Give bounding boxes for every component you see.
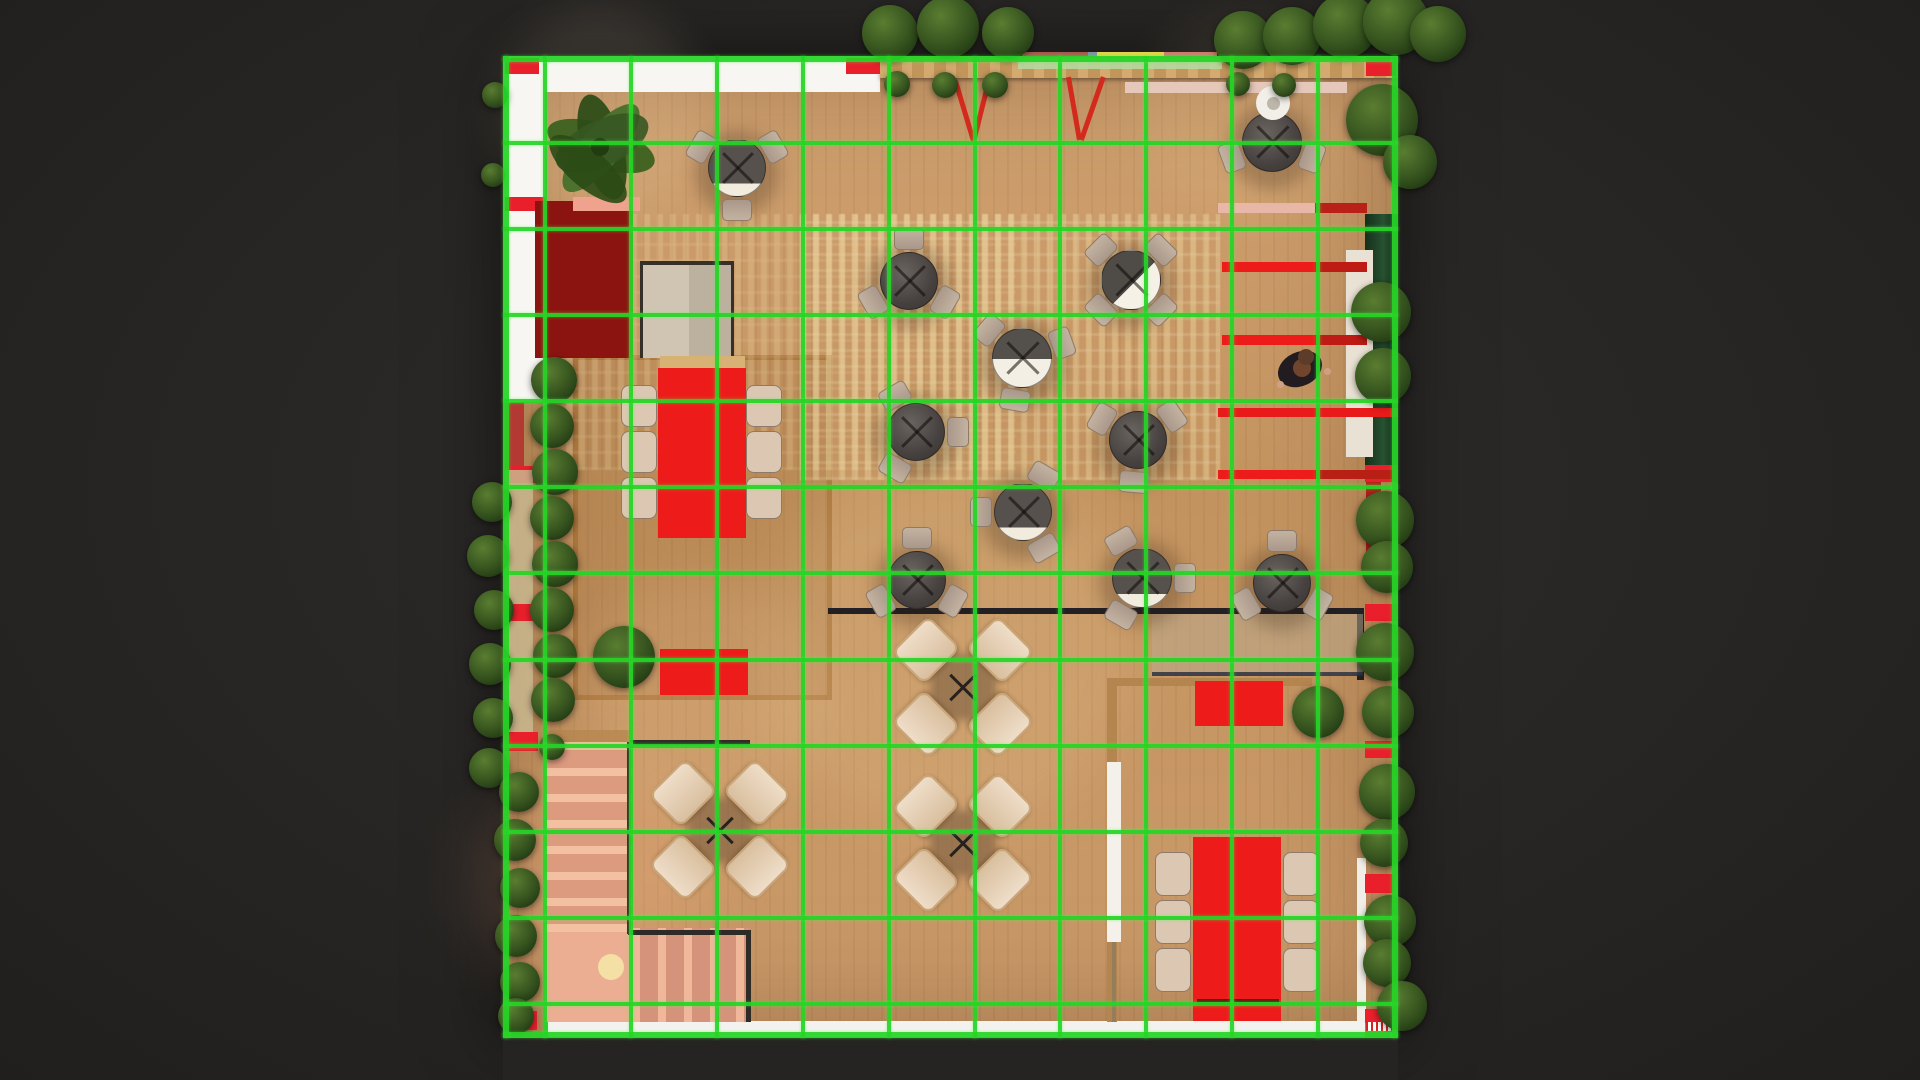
grid-v-line bbox=[973, 56, 977, 1038]
stair-rail bbox=[746, 930, 751, 1022]
cafe-chair bbox=[902, 527, 932, 549]
red-bench-bar bbox=[1222, 262, 1315, 272]
cafe-chair bbox=[947, 417, 969, 447]
bush bbox=[1360, 819, 1408, 867]
grid-v-line bbox=[1058, 56, 1062, 1038]
dining-chair bbox=[1155, 948, 1191, 992]
bush bbox=[982, 7, 1034, 59]
staircase-upper-flight bbox=[545, 742, 632, 932]
dining-chair bbox=[1155, 852, 1191, 896]
long-red-table bbox=[658, 368, 746, 538]
grid-v-line bbox=[543, 56, 547, 1038]
white-vase-mouth bbox=[1267, 97, 1280, 110]
red-bench-bar bbox=[1315, 470, 1398, 479]
dining-chair bbox=[1283, 948, 1319, 992]
sideboard-cabinet bbox=[640, 261, 734, 358]
grid-h-line bbox=[503, 313, 1398, 317]
white-screen-panel bbox=[1107, 762, 1121, 942]
bush bbox=[1362, 686, 1414, 738]
staircase-lower-flight bbox=[632, 928, 750, 1022]
grid-v-line bbox=[887, 56, 891, 1038]
bush bbox=[532, 541, 578, 587]
dining-chair bbox=[621, 385, 657, 427]
bush bbox=[1355, 348, 1411, 404]
bush bbox=[982, 72, 1008, 98]
bar-table-edge bbox=[1152, 672, 1363, 676]
bush bbox=[1363, 939, 1411, 987]
bush bbox=[530, 496, 574, 540]
grid-h-line bbox=[503, 916, 1398, 920]
grid-h-line bbox=[503, 141, 1398, 145]
grid-h-line bbox=[503, 744, 1398, 748]
dining-chair bbox=[1283, 852, 1319, 896]
long-red-table bbox=[1193, 837, 1281, 1021]
dining-chair bbox=[746, 477, 782, 519]
bush bbox=[530, 588, 574, 632]
bush bbox=[1351, 282, 1411, 342]
bush bbox=[531, 678, 575, 722]
dark-red-wall bbox=[535, 201, 633, 358]
bistro-table bbox=[1109, 411, 1167, 469]
grid-border-left bbox=[503, 56, 509, 1038]
red-ottoman bbox=[660, 649, 748, 695]
red-accent bbox=[505, 732, 538, 751]
grid-v-line bbox=[1230, 56, 1234, 1038]
bistro-table bbox=[994, 483, 1052, 541]
grid-h-line bbox=[503, 485, 1398, 489]
person-head bbox=[1298, 349, 1314, 365]
bush bbox=[530, 404, 574, 448]
bush bbox=[1272, 73, 1296, 97]
bush bbox=[1410, 6, 1466, 62]
screen-panel-rail bbox=[1112, 942, 1116, 1022]
bush bbox=[862, 5, 918, 61]
dining-chair bbox=[746, 431, 782, 473]
red-bench-bar bbox=[1315, 203, 1367, 213]
cafe-chair bbox=[1267, 530, 1297, 552]
red-bench-bar bbox=[1315, 335, 1367, 345]
stair-rail bbox=[628, 930, 750, 935]
red-bench-bar bbox=[1218, 408, 1398, 417]
bush bbox=[1377, 981, 1427, 1031]
red-ottoman bbox=[1195, 681, 1283, 726]
grid-h-line bbox=[503, 227, 1398, 231]
grid-v-line bbox=[1144, 56, 1148, 1038]
bush bbox=[932, 72, 958, 98]
bistro-table bbox=[888, 551, 946, 609]
bush bbox=[1356, 623, 1414, 681]
bar-table-surface bbox=[1152, 614, 1363, 674]
cafe-chair bbox=[894, 228, 924, 250]
dining-chair bbox=[746, 385, 782, 427]
dining-chair bbox=[1283, 900, 1319, 944]
floor-light-dot bbox=[598, 954, 624, 980]
grid-v-line bbox=[801, 56, 805, 1038]
bush bbox=[1361, 541, 1413, 593]
grid-h-line bbox=[503, 830, 1398, 834]
grid-h-line bbox=[503, 1002, 1398, 1006]
dining-chair bbox=[621, 477, 657, 519]
cafe-chair bbox=[722, 199, 752, 221]
grid-v-line bbox=[629, 56, 633, 1038]
bistro-table bbox=[887, 403, 945, 461]
bush bbox=[481, 163, 505, 187]
grid-border-top bbox=[503, 56, 1398, 62]
cafe-chair bbox=[1174, 563, 1196, 593]
person-hand bbox=[1277, 381, 1284, 388]
bistro-table bbox=[1101, 250, 1161, 310]
bush bbox=[1359, 764, 1415, 820]
grid-border-right bbox=[1392, 56, 1398, 1038]
dining-chair bbox=[621, 431, 657, 473]
person-hand bbox=[1324, 368, 1331, 375]
outside-apron bbox=[503, 1038, 1398, 1080]
grid-h-line bbox=[503, 571, 1398, 575]
bush bbox=[917, 0, 979, 58]
red-bench-bar bbox=[1222, 335, 1315, 345]
bush bbox=[533, 634, 577, 678]
red-bench-bar bbox=[1315, 262, 1367, 272]
bush bbox=[494, 819, 536, 861]
bistro-table bbox=[992, 328, 1052, 388]
grid-h-line bbox=[503, 399, 1398, 403]
bush bbox=[593, 626, 655, 688]
red-accent bbox=[1365, 874, 1394, 893]
dining-chair bbox=[1155, 900, 1191, 944]
grid-h-line bbox=[503, 658, 1398, 662]
bush bbox=[531, 357, 577, 403]
floorplan-render bbox=[0, 0, 1920, 1080]
bush bbox=[495, 915, 537, 957]
grid-v-line bbox=[1316, 56, 1320, 1038]
bistro-table bbox=[1253, 554, 1311, 612]
bistro-table bbox=[1112, 548, 1172, 608]
grid-v-line bbox=[715, 56, 719, 1038]
grid-border-bottom bbox=[503, 1032, 1398, 1038]
